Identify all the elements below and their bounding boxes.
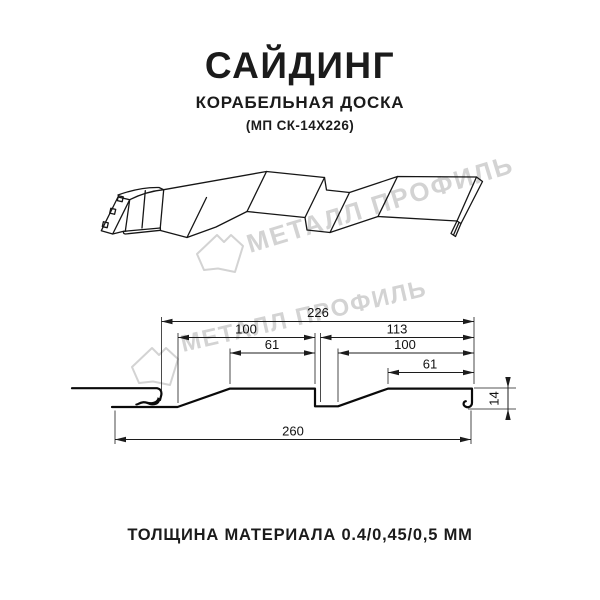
watermark-lower: МЕТАЛЛ ПРОФИЛЬ (132, 275, 429, 385)
watermark-logo-icon (132, 348, 178, 385)
dim-label-mid-right: 100 (394, 337, 416, 352)
cross-section-view (72, 388, 472, 407)
dim-label-total: 260 (282, 424, 304, 439)
technical-drawing: МЕТАЛЛ ПРОФИЛЬ МЕТАЛЛ ПРОФИЛЬ (0, 0, 600, 600)
watermark-text: МЕТАЛЛ ПРОФИЛЬ (178, 275, 429, 358)
extension-lines (115, 317, 516, 444)
watermark-text: МЕТАЛЛ ПРОФИЛЬ (243, 149, 517, 259)
product-diagram-page: САЙДИНГ КОРАБЕЛЬНАЯ ДОСКА (МП СК-14Х226)… (0, 0, 600, 600)
dim-label-upper-left: 100 (235, 322, 257, 337)
dim-label-height: 14 (487, 391, 502, 405)
lock-seam-detail (135, 397, 160, 405)
watermark-logo-icon (197, 235, 243, 272)
dim-label-upper-right: 113 (387, 322, 408, 337)
dimension-lines (115, 322, 508, 440)
dim-label-lower-right: 61 (423, 357, 437, 372)
material-thickness-note: ТОЛЩИНА МАТЕРИАЛА 0.4/0,45/0,5 ММ (0, 526, 600, 545)
dim-label-overall: 226 (307, 305, 329, 320)
watermark-upper: МЕТАЛЛ ПРОФИЛЬ (197, 149, 517, 272)
dim-label-mid-left: 61 (265, 337, 279, 352)
